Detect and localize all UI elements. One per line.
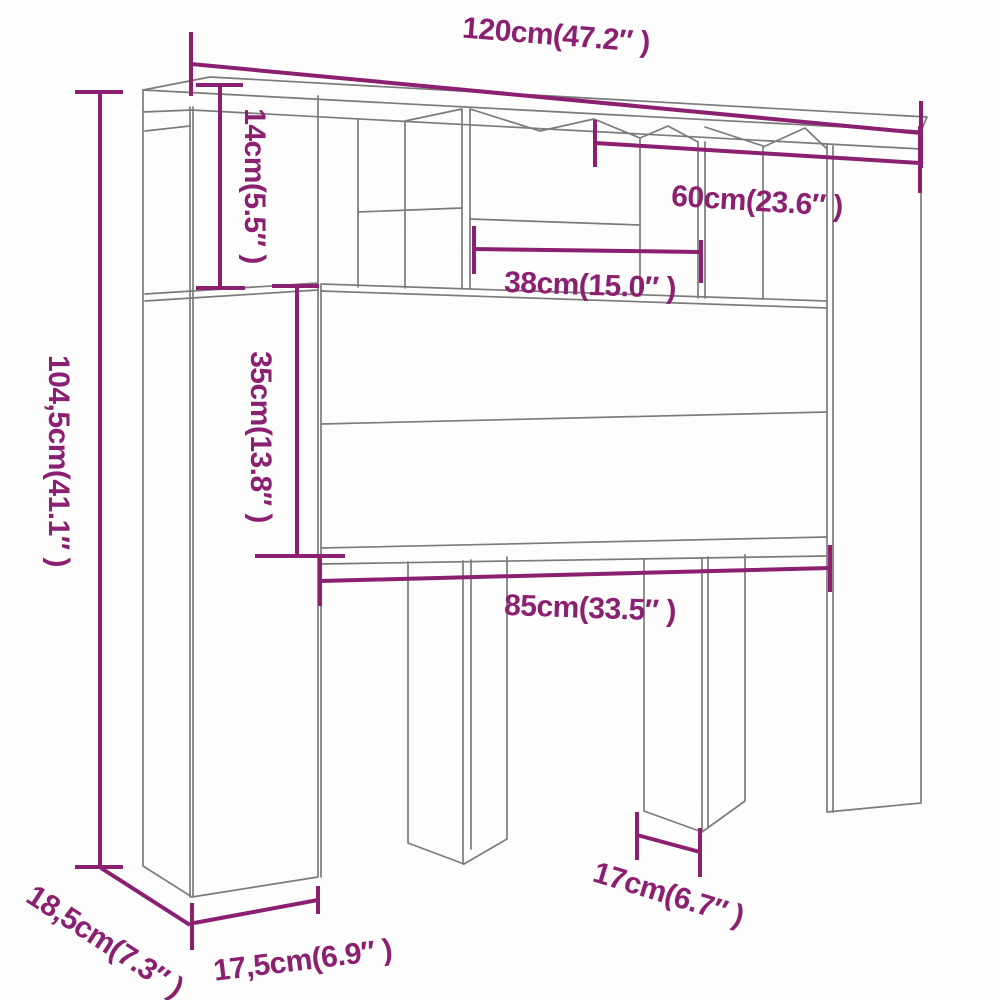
dim-line-top-shelf-height: [196, 85, 245, 288]
dim-line-leg-width: [637, 812, 700, 877]
dim-label-opening-width: 85cm(33.5″ ): [504, 589, 677, 628]
dim-label-depth: 18,5cm(7.3″ ): [21, 879, 190, 1000]
headboard-dimension-diagram: 120cm(47.2″ ) 14cm(5.5″ ) 60cm(23.6″ ) 3…: [0, 0, 1000, 1000]
middle-left-leg: [408, 557, 507, 864]
dim-label-inner-width-right: 60cm(23.6″ ): [670, 180, 844, 223]
dim-line-total-width: [191, 32, 921, 168]
dim-label-top-shelf-height: 14cm(5.5″ ): [238, 108, 271, 264]
dim-label-side-column-width: 17,5cm(6.9″ ): [212, 933, 394, 988]
dim-line-total-height: [75, 92, 123, 867]
dim-label-total-height: 104,5cm(41.1″ ): [42, 355, 75, 567]
headboard-panel: [321, 412, 827, 564]
dim-line-inner-width-right: [595, 120, 920, 193]
dim-line-side-column-width: [194, 886, 318, 923]
right-column: [827, 144, 921, 812]
dim-label-inner-width-middle: 38cm(15.0″ ): [504, 266, 677, 305]
dim-label-leg-width: 17cm(6.7″ ): [589, 856, 747, 933]
dimension-lines: [75, 32, 921, 950]
dim-label-panel-height: 35cm(13.8″ ): [244, 351, 277, 523]
left-column: [143, 90, 321, 897]
dimension-diagram-canvas: 120cm(47.2″ ) 14cm(5.5″ ) 60cm(23.6″ ) 3…: [0, 0, 1000, 1000]
dim-label-total-width: 120cm(47.2″ ): [461, 12, 651, 60]
